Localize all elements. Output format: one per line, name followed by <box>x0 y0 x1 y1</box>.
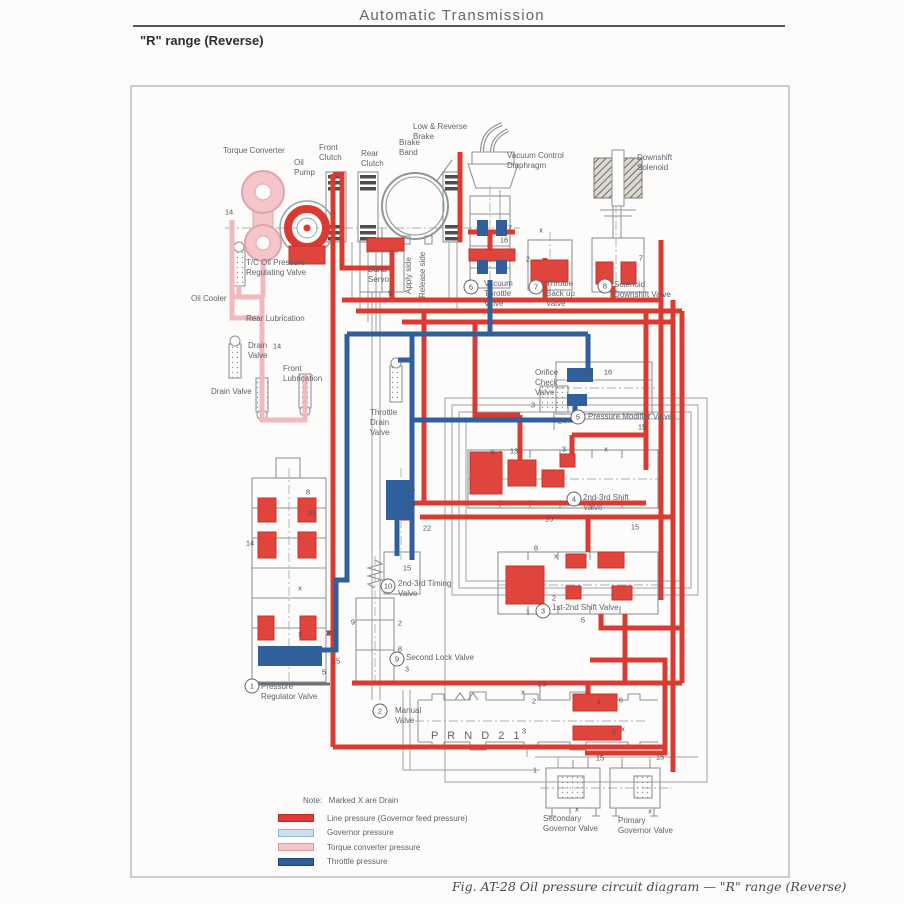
legend-label: Throttle pressure <box>327 857 387 866</box>
legend-label: Line pressure (Governor feed pressure) <box>327 814 468 823</box>
legend: Note: Marked X are Drain Line pressure (… <box>278 796 468 869</box>
legend-swatch <box>278 814 314 822</box>
legend-swatch <box>278 843 314 851</box>
legend-item: Line pressure (Governor feed pressure) <box>278 811 468 826</box>
manual-page: Automatic Transmission "R" range (Revers… <box>0 0 904 904</box>
legend-item: Throttle pressure <box>278 855 468 870</box>
legend-label: Torque converter pressure <box>327 843 420 852</box>
legend-rows: Line pressure (Governor feed pressure)Go… <box>278 811 468 869</box>
circuit-diagram <box>0 0 904 904</box>
legend-swatch <box>278 858 314 866</box>
legend-swatch <box>278 829 314 837</box>
legend-note: Note: Marked X are Drain <box>303 796 468 805</box>
legend-item: Governor pressure <box>278 826 468 841</box>
legend-item: Torque converter pressure <box>278 840 468 855</box>
legend-label: Governor pressure <box>327 828 394 837</box>
figure-caption: Fig. AT-28 Oil pressure circuit diagram … <box>452 879 846 894</box>
